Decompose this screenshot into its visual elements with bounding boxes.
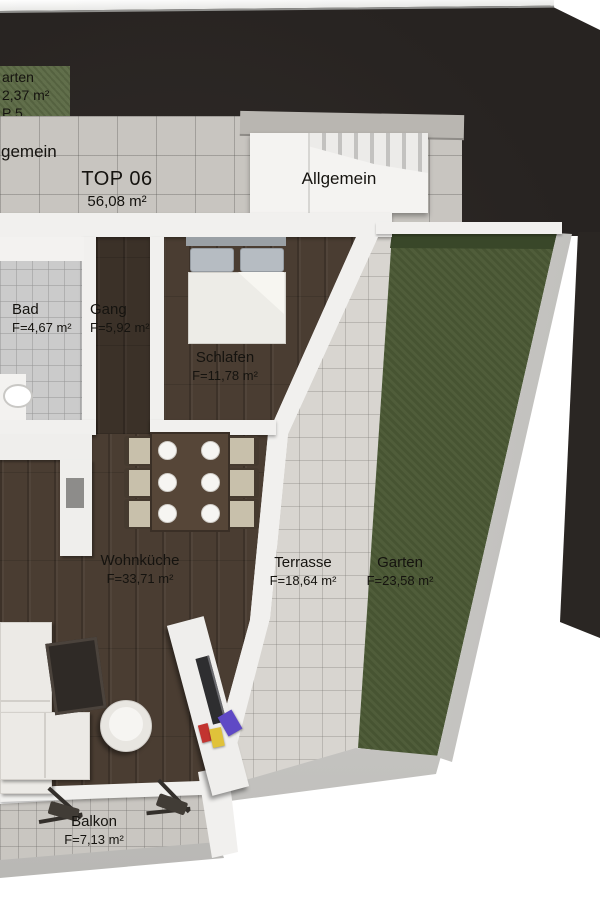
common-walkway-label: gemein bbox=[1, 142, 57, 162]
wall-bad-bottom bbox=[0, 420, 96, 435]
room-label-balkon: Balkon F=7,13 m² bbox=[44, 814, 144, 846]
kitchen-counter bbox=[0, 434, 92, 460]
plate-icon bbox=[201, 504, 220, 523]
outer-wall-top bbox=[0, 213, 392, 237]
room-label-gang: Gang F=5,92 m² bbox=[90, 302, 160, 334]
room-label-wohnkueche: Wohnküche F=33,71 m² bbox=[72, 553, 208, 585]
room-label-bad: Bad F=4,67 m² bbox=[12, 302, 92, 334]
dining-chair bbox=[226, 436, 259, 466]
pillow-icon bbox=[240, 248, 284, 272]
neighbor-garden-patch: arten 2,37 m² P 5 bbox=[0, 66, 70, 120]
stairwell-box: Allgemein bbox=[250, 133, 428, 213]
stairs-icon bbox=[310, 133, 428, 173]
unit-caption: TOP 06 56,08 m² bbox=[58, 168, 176, 210]
unit-name: TOP 06 bbox=[58, 168, 176, 191]
room-label-terrasse: Terrasse F=18,64 m² bbox=[255, 555, 351, 587]
plate-icon bbox=[201, 473, 220, 492]
plate-icon bbox=[158, 473, 177, 492]
room-label-garten: Garten F=23,58 m² bbox=[352, 555, 448, 587]
washbasin-icon bbox=[3, 384, 33, 408]
floor-plan-canvas: arten 2,37 m² P 5 gemein Allgemein TOP 0… bbox=[0, 0, 600, 913]
wall-bad-gang bbox=[82, 237, 96, 434]
wall-gang-schlafen bbox=[150, 237, 164, 434]
plate-icon bbox=[158, 504, 177, 523]
dining-chair bbox=[226, 468, 259, 498]
dining-chair bbox=[226, 499, 259, 529]
plate-icon bbox=[158, 441, 177, 460]
gang-floor bbox=[96, 237, 150, 434]
pillow-icon bbox=[190, 248, 234, 272]
kitchen-sink-icon bbox=[66, 478, 84, 508]
bath-vanity bbox=[0, 237, 84, 261]
sofa-seam bbox=[44, 712, 46, 778]
room-label-schlafen: Schlafen F=11,78 m² bbox=[160, 350, 290, 382]
unit-area: 56,08 m² bbox=[58, 193, 176, 210]
terrace-wall-top bbox=[376, 222, 562, 234]
neighbor-garden-label: arten bbox=[2, 68, 34, 86]
plate-icon bbox=[201, 441, 220, 460]
sofa-seam bbox=[0, 700, 50, 702]
bed-headboard bbox=[186, 237, 286, 246]
stairwell-label: Allgemein bbox=[250, 169, 428, 189]
armchair-cushion bbox=[109, 707, 143, 741]
coffee-table bbox=[45, 637, 107, 716]
kitchen-counter bbox=[60, 460, 92, 556]
neighbor-garden-area: 2,37 m² bbox=[2, 86, 49, 104]
